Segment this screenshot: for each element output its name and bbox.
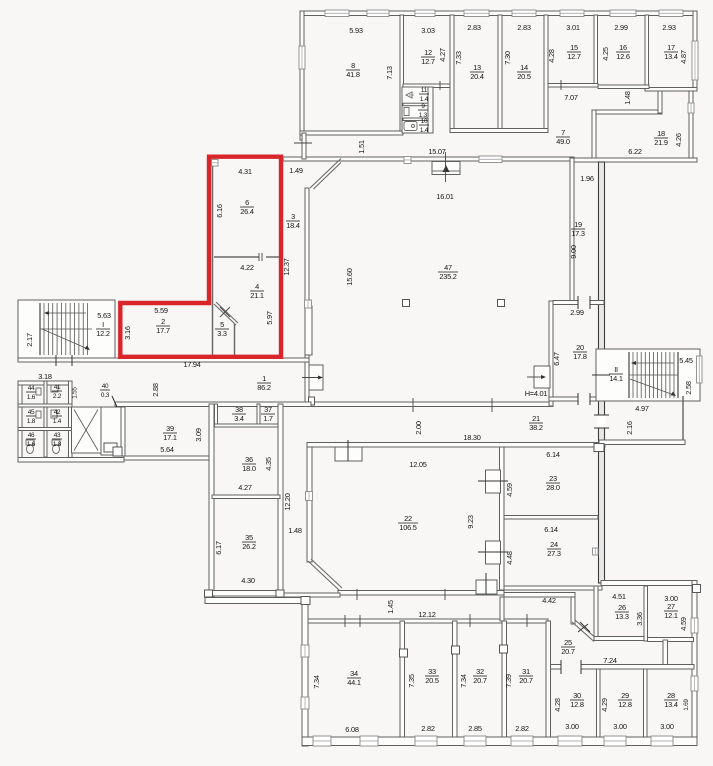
svg-text:38.2: 38.2	[529, 423, 543, 432]
svg-text:41: 41	[54, 384, 61, 391]
svg-text:3.3: 3.3	[217, 329, 227, 338]
svg-text:5.45: 5.45	[679, 356, 693, 365]
svg-text:H=4.01: H=4.01	[525, 389, 548, 398]
svg-text:26.2: 26.2	[242, 542, 256, 551]
svg-text:1.8: 1.8	[27, 418, 36, 425]
svg-text:7.39: 7.39	[504, 674, 513, 688]
svg-text:44.1: 44.1	[347, 678, 361, 687]
svg-text:1.49: 1.49	[289, 166, 303, 175]
svg-text:28: 28	[667, 691, 675, 700]
svg-text:1.55: 1.55	[72, 387, 79, 399]
svg-text:1.48: 1.48	[623, 91, 632, 105]
svg-text:14: 14	[520, 63, 528, 72]
svg-text:17.8: 17.8	[573, 352, 587, 361]
svg-text:29: 29	[621, 691, 629, 700]
svg-text:4.59: 4.59	[679, 617, 688, 631]
svg-text:43: 43	[54, 432, 61, 439]
svg-text:26.4: 26.4	[240, 207, 254, 216]
svg-text:7.34: 7.34	[312, 675, 321, 689]
svg-text:2.2: 2.2	[53, 393, 62, 400]
svg-text:12.20: 12.20	[283, 493, 292, 510]
svg-text:36: 36	[245, 455, 253, 464]
svg-text:20.5: 20.5	[425, 676, 439, 685]
svg-text:3.36: 3.36	[635, 612, 644, 626]
svg-text:18: 18	[657, 129, 665, 138]
svg-text:1.7: 1.7	[263, 414, 273, 423]
svg-text:20.7: 20.7	[473, 676, 487, 685]
svg-text:35: 35	[245, 533, 253, 542]
svg-text:19: 19	[574, 220, 582, 229]
svg-text:5.64: 5.64	[160, 445, 174, 454]
svg-text:7.34: 7.34	[459, 674, 468, 688]
svg-text:86.2: 86.2	[257, 383, 271, 392]
svg-text:4.22: 4.22	[240, 263, 254, 272]
svg-text:2.17: 2.17	[25, 333, 34, 347]
svg-text:16: 16	[619, 43, 627, 52]
svg-text:2.99: 2.99	[570, 308, 584, 317]
svg-text:13.3: 13.3	[615, 612, 629, 621]
svg-text:1.6: 1.6	[27, 441, 36, 448]
svg-text:3.18: 3.18	[38, 372, 52, 381]
svg-text:3.4: 3.4	[234, 414, 244, 423]
svg-text:8: 8	[351, 61, 355, 70]
svg-text:3.00: 3.00	[613, 722, 627, 731]
svg-text:2.93: 2.93	[662, 23, 676, 32]
svg-text:17: 17	[667, 43, 675, 52]
svg-text:5.93: 5.93	[349, 26, 363, 35]
svg-text:27: 27	[667, 602, 675, 611]
svg-text:1.4: 1.4	[420, 127, 429, 134]
svg-text:5.59: 5.59	[154, 306, 168, 315]
svg-text:47: 47	[444, 263, 452, 272]
svg-text:7.07: 7.07	[564, 93, 578, 102]
svg-text:20.7: 20.7	[519, 676, 533, 685]
svg-text:30: 30	[573, 691, 581, 700]
svg-text:18.30: 18.30	[463, 433, 480, 442]
svg-text:4.48: 4.48	[505, 551, 514, 565]
svg-text:2.58: 2.58	[684, 381, 693, 395]
svg-text:2.85: 2.85	[468, 724, 482, 733]
svg-text:1: 1	[262, 374, 266, 383]
svg-text:18.4: 18.4	[286, 221, 300, 230]
svg-text:42: 42	[54, 409, 61, 416]
svg-text:37: 37	[264, 405, 272, 414]
svg-text:4.27: 4.27	[238, 483, 252, 492]
svg-text:1.69: 1.69	[683, 699, 690, 711]
svg-text:44: 44	[28, 385, 35, 392]
svg-text:1.4: 1.4	[53, 418, 62, 425]
svg-text:17.1: 17.1	[163, 433, 177, 442]
svg-text:3.09: 3.09	[194, 428, 203, 442]
svg-text:38: 38	[235, 405, 243, 414]
svg-text:15.07: 15.07	[428, 147, 445, 156]
svg-text:20.5: 20.5	[517, 72, 531, 81]
svg-text:32: 32	[476, 667, 484, 676]
svg-text:6: 6	[245, 198, 249, 207]
svg-text:12.1: 12.1	[664, 611, 678, 620]
svg-text:3.01: 3.01	[566, 23, 580, 32]
svg-text:12.6: 12.6	[616, 52, 630, 61]
svg-text:12.12: 12.12	[418, 610, 435, 619]
svg-text:7.13: 7.13	[385, 66, 394, 80]
svg-text:4.28: 4.28	[547, 49, 556, 63]
svg-text:4.30: 4.30	[241, 576, 255, 585]
svg-text:24: 24	[550, 540, 558, 549]
svg-text:2.83: 2.83	[467, 23, 481, 32]
svg-text:7.33: 7.33	[454, 51, 463, 65]
svg-text:4.29: 4.29	[600, 698, 609, 712]
svg-text:7.24: 7.24	[603, 656, 617, 665]
svg-text:17.94: 17.94	[183, 360, 200, 369]
svg-text:2.16: 2.16	[625, 421, 634, 435]
svg-text:16.01: 16.01	[436, 192, 453, 201]
svg-text:12.8: 12.8	[618, 700, 632, 709]
svg-text:1.96: 1.96	[580, 174, 594, 183]
svg-text:34: 34	[350, 669, 358, 678]
svg-text:4.51: 4.51	[612, 592, 626, 601]
svg-text:11: 11	[421, 87, 428, 94]
svg-text:41.8: 41.8	[346, 70, 360, 79]
svg-text:12.7: 12.7	[421, 57, 435, 66]
svg-text:12.7: 12.7	[567, 52, 581, 61]
svg-text:20: 20	[576, 343, 584, 352]
svg-text:5.63: 5.63	[97, 311, 111, 320]
svg-text:21: 21	[532, 414, 540, 423]
svg-text:3.16: 3.16	[123, 326, 132, 340]
svg-text:1.51: 1.51	[357, 140, 366, 154]
svg-text:4.27: 4.27	[438, 48, 447, 62]
svg-text:2.82: 2.82	[515, 724, 529, 733]
svg-text:6.08: 6.08	[345, 725, 359, 734]
svg-text:3: 3	[291, 212, 295, 221]
svg-text:4.59: 4.59	[505, 483, 514, 497]
svg-text:1.48: 1.48	[288, 526, 302, 535]
svg-text:2: 2	[161, 317, 165, 326]
svg-text:6.22: 6.22	[628, 147, 642, 156]
svg-text:3.00: 3.00	[565, 722, 579, 731]
svg-text:17.3: 17.3	[571, 229, 585, 238]
svg-text:28.0: 28.0	[546, 483, 560, 492]
svg-text:235.2: 235.2	[439, 272, 456, 281]
svg-text:15: 15	[570, 43, 578, 52]
svg-text:2.00: 2.00	[414, 421, 423, 435]
svg-text:4.31: 4.31	[238, 167, 252, 176]
svg-text:9.00: 9.00	[569, 245, 578, 259]
svg-text:6.47: 6.47	[552, 352, 561, 366]
svg-text:1.4: 1.4	[420, 96, 429, 103]
svg-text:13.4: 13.4	[664, 700, 678, 709]
svg-text:2.83: 2.83	[517, 23, 531, 32]
svg-text:10: 10	[421, 118, 428, 125]
svg-text:4.28: 4.28	[553, 698, 562, 712]
svg-text:0.3: 0.3	[101, 392, 110, 399]
svg-text:6.17: 6.17	[214, 541, 223, 555]
svg-text:49.0: 49.0	[556, 137, 570, 146]
svg-text:2.99: 2.99	[614, 23, 628, 32]
svg-text:12.2: 12.2	[96, 329, 110, 338]
svg-text:12: 12	[424, 48, 432, 57]
svg-text:31: 31	[522, 667, 530, 676]
svg-text:106.5: 106.5	[399, 523, 416, 532]
svg-text:33: 33	[428, 667, 436, 676]
svg-text:4.97: 4.97	[635, 404, 649, 413]
svg-text:4.42: 4.42	[542, 596, 556, 605]
svg-text:3.00: 3.00	[660, 722, 674, 731]
svg-text:39: 39	[166, 424, 174, 433]
svg-text:1.6: 1.6	[27, 394, 36, 401]
svg-text:21.1: 21.1	[250, 291, 264, 300]
svg-text:13.4: 13.4	[664, 52, 678, 61]
svg-text:2.88: 2.88	[151, 383, 160, 397]
svg-text:25: 25	[564, 638, 572, 647]
svg-text:5.97: 5.97	[265, 311, 274, 325]
svg-text:4: 4	[255, 282, 259, 291]
svg-text:45: 45	[28, 409, 35, 416]
svg-text:46: 46	[28, 432, 35, 439]
svg-text:5: 5	[220, 320, 224, 329]
svg-text:20.4: 20.4	[470, 72, 484, 81]
svg-text:7: 7	[561, 128, 565, 137]
svg-text:4.35: 4.35	[264, 457, 273, 471]
svg-text:12.37: 12.37	[282, 258, 291, 275]
svg-text:21.9: 21.9	[654, 138, 668, 147]
svg-text:7.35: 7.35	[407, 674, 416, 688]
svg-text:4.87: 4.87	[679, 50, 688, 64]
svg-text:18.0: 18.0	[242, 464, 256, 473]
svg-text:6.14: 6.14	[544, 525, 558, 534]
svg-text:12.05: 12.05	[409, 460, 426, 469]
svg-text:20.7: 20.7	[561, 647, 575, 656]
svg-text:12.8: 12.8	[570, 700, 584, 709]
svg-text:3.03: 3.03	[421, 26, 435, 35]
svg-text:6.16: 6.16	[215, 204, 224, 218]
svg-text:17.7: 17.7	[156, 326, 170, 335]
svg-text:22: 22	[404, 514, 412, 523]
svg-text:26: 26	[618, 603, 626, 612]
svg-text:2.82: 2.82	[421, 724, 435, 733]
svg-text:4.25: 4.25	[601, 47, 610, 61]
svg-text:4.26: 4.26	[674, 133, 683, 147]
svg-text:II: II	[614, 365, 618, 374]
svg-text:1.8: 1.8	[53, 441, 62, 448]
svg-text:I: I	[102, 320, 104, 329]
svg-text:23: 23	[549, 474, 557, 483]
svg-text:40: 40	[102, 383, 109, 390]
svg-text:9.23: 9.23	[466, 515, 475, 529]
svg-text:7.30: 7.30	[503, 51, 512, 65]
svg-text:15.60: 15.60	[345, 268, 354, 285]
svg-text:1.45: 1.45	[386, 600, 395, 614]
svg-text:14.1: 14.1	[609, 374, 623, 383]
svg-text:13: 13	[473, 63, 481, 72]
svg-text:27.3: 27.3	[547, 549, 561, 558]
svg-text:6.14: 6.14	[546, 450, 560, 459]
